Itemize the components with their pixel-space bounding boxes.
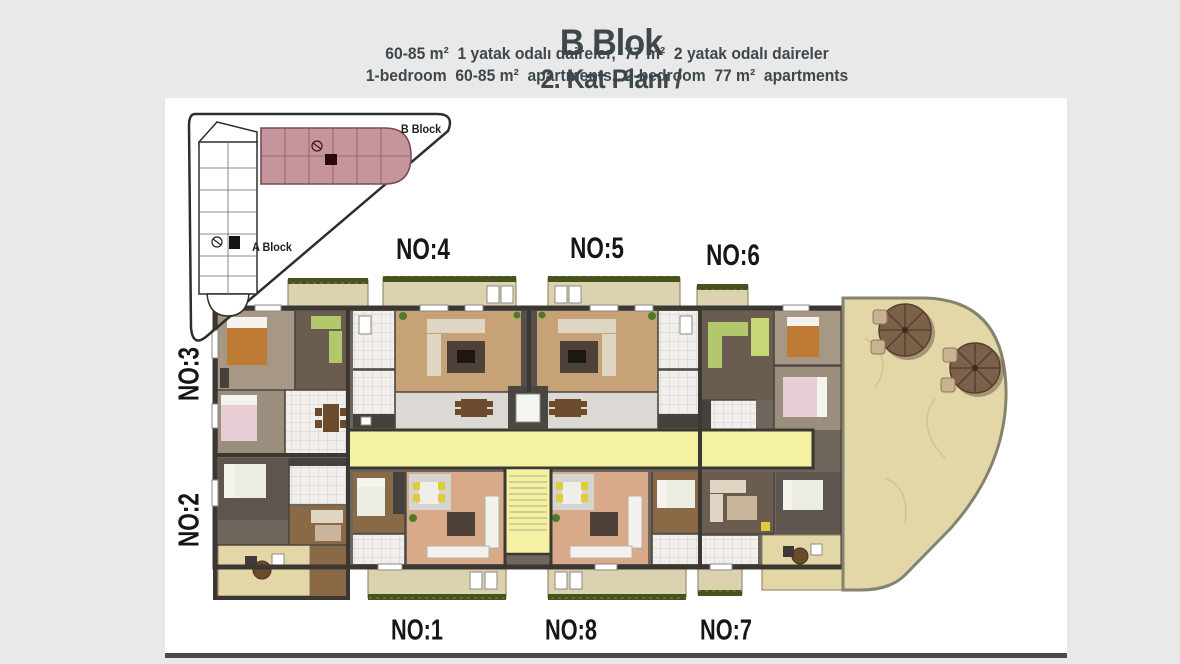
- sofa-l-shape: [558, 319, 616, 376]
- bed-double: [224, 464, 266, 498]
- bed-pink: [783, 377, 827, 417]
- unit-label-no1: NO:1: [391, 615, 443, 648]
- balcony-top-no3: [288, 278, 368, 308]
- staircase: [505, 468, 551, 554]
- image-bottom-edge: [165, 653, 1067, 658]
- building-floor-plan: [212, 276, 843, 600]
- floor-plan-image: [165, 98, 1067, 658]
- sofa-l-shape: [427, 319, 485, 376]
- terrace: [843, 298, 1006, 590]
- unit-label-no7: NO:7: [700, 615, 752, 648]
- corridor: [348, 430, 813, 468]
- floor-plan-panel: B Block A Block NO:4 NO:5 NO:6 NO:3 NO:2…: [165, 98, 1067, 658]
- unit-label-no6: NO:6: [706, 239, 760, 273]
- apartment-no3: [218, 311, 348, 455]
- bed-double: [657, 480, 695, 508]
- subtitle-turkish: 60-85 m² 1 yatak odalı daireler, 77 m² 2…: [64, 44, 1150, 64]
- b-block-label: B Block: [401, 122, 441, 136]
- a-block-label: A Block: [252, 240, 292, 254]
- balcony-bottom-no1: [368, 568, 506, 600]
- a-block-shape: [199, 122, 257, 316]
- subtitle-english: 1-bedroom 60-85 m² apartments, 2-bedroom…: [64, 66, 1150, 86]
- balcony-top-no5: [548, 276, 680, 308]
- unit-label-no8: NO:8: [545, 615, 597, 648]
- unit-label-no4: NO:4: [396, 233, 450, 267]
- terrace-no7: [762, 535, 843, 590]
- balcony-bottom-no8: [548, 568, 686, 600]
- terrace-no2: [218, 545, 310, 596]
- unit-label-no5: NO:5: [570, 232, 624, 266]
- dining-yellow-chairs: [409, 474, 451, 510]
- balcony-top-no4: [383, 276, 516, 308]
- dining-yellow-chairs: [552, 474, 594, 510]
- apartment-no1: [353, 472, 505, 564]
- bed-pink: [221, 395, 257, 441]
- unit-label-no2: NO:2: [174, 493, 207, 547]
- sofa-beige: [311, 510, 343, 541]
- bed-double: [357, 478, 385, 516]
- umbrella-icon: [941, 343, 1004, 397]
- bed-double: [787, 317, 819, 357]
- apartment-no8: [550, 472, 700, 564]
- bed-double: [783, 480, 823, 510]
- b-block-shape: [261, 128, 411, 184]
- balcony-top-no6: [697, 284, 748, 308]
- bed-double: [227, 317, 267, 365]
- unit-label-no3: NO:3: [174, 347, 207, 401]
- balcony-bottom-no7: [698, 568, 742, 596]
- umbrella-icon: [871, 304, 935, 360]
